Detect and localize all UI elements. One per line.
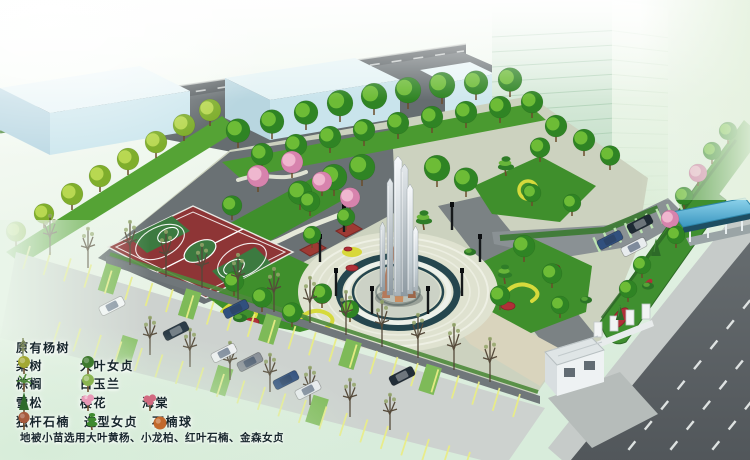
cherry-blossom-icon [80,391,96,412]
crabapple-icon [142,391,158,412]
photinia-standard-icon [16,410,32,431]
photinia-ball-icon [152,410,168,431]
legend-note: 地被小苗选用大叶黄杨、小龙柏、红叶石楠、金森女贞 [20,430,284,445]
magnolia-icon [80,372,96,393]
legend-item: 独杆石楠 [16,410,70,432]
cedar-icon [16,391,32,412]
palm-icon [16,372,32,393]
plant-legend: 原有杨树 栾树 大叶女贞 棕榈 白玉兰 [8,334,298,458]
tree [464,248,476,255]
legend-item: 造型女贞 [84,410,138,432]
legend-item: 石楠球 [152,410,193,432]
topiary-privet-icon [84,410,100,431]
landscape-plan-rendering: 原有杨树 栾树 大叶女贞 棕榈 白玉兰 [0,0,750,460]
tree [642,282,654,289]
tree [580,296,592,303]
